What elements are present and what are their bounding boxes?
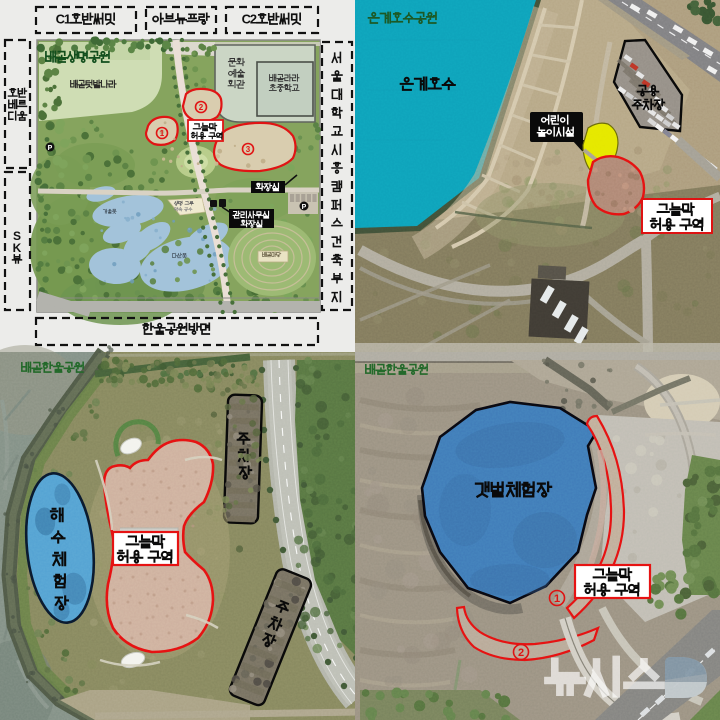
svg-text:2: 2	[250, 12, 257, 27]
svg-text:P: P	[302, 204, 307, 211]
svg-text:3: 3	[246, 145, 251, 154]
svg-text:1: 1	[160, 129, 165, 138]
svg-text:K: K	[13, 241, 22, 255]
svg-text:2: 2	[199, 103, 204, 112]
svg-text:P: P	[48, 145, 53, 152]
svg-text:1: 1	[64, 12, 71, 27]
